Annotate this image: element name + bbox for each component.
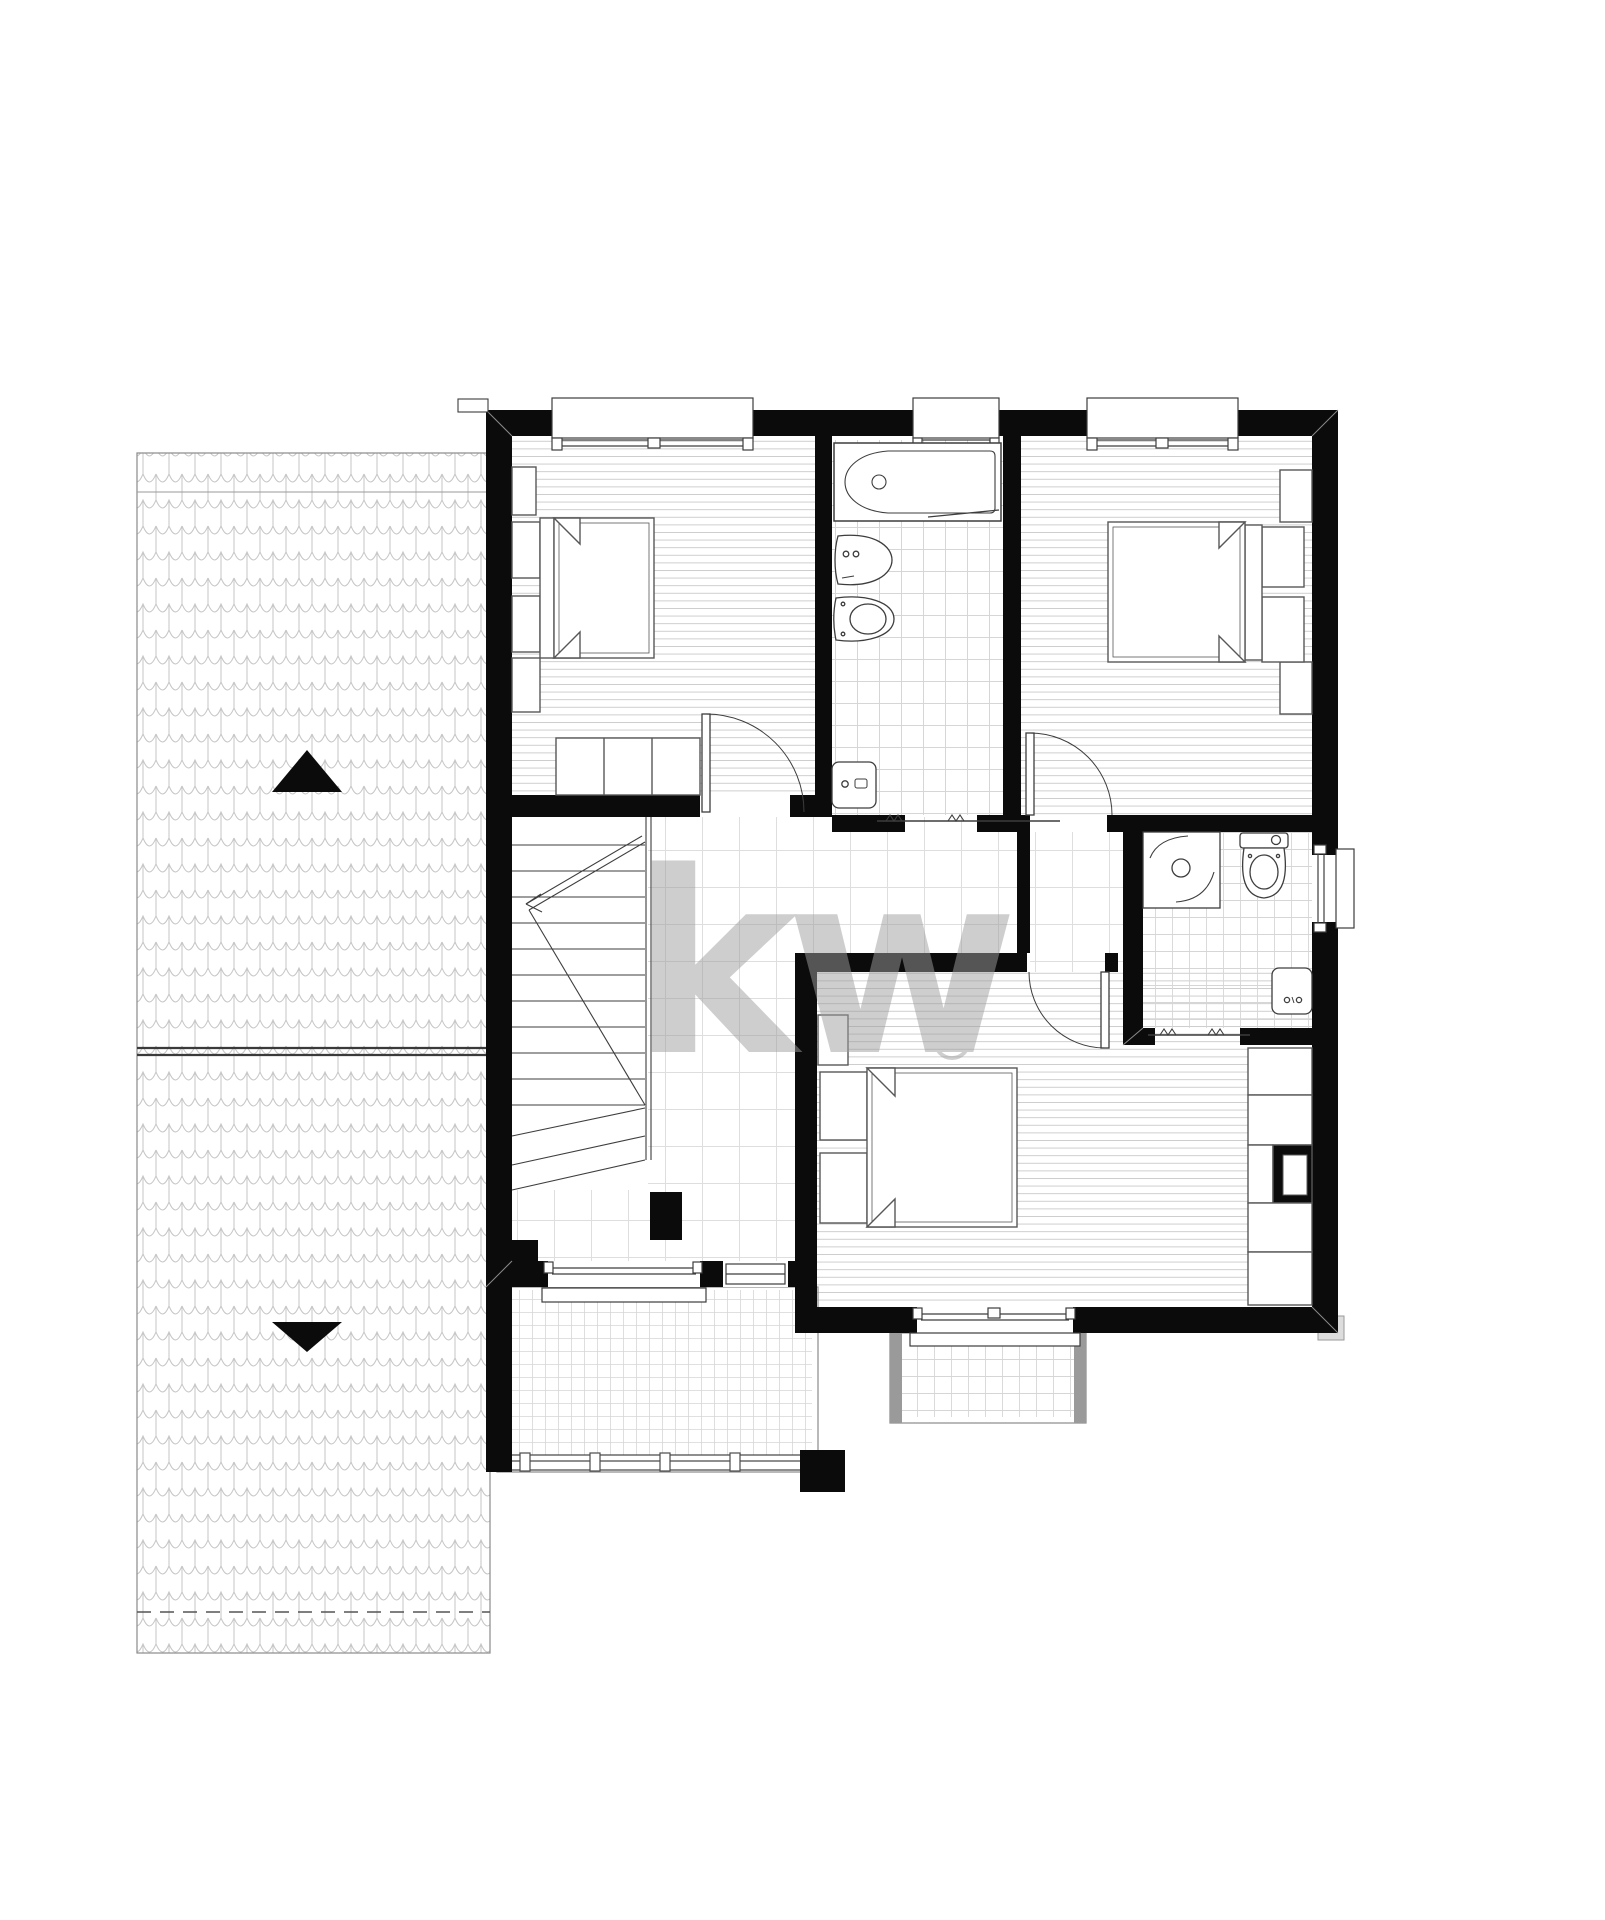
nightstand (1262, 527, 1304, 587)
duct-column-hall (650, 1192, 682, 1240)
duct-shaft-inner (1283, 1155, 1307, 1195)
roof-strip (137, 453, 490, 1653)
wall-bed1-bath (815, 436, 832, 815)
closet-run (1248, 1048, 1312, 1305)
shower (1143, 832, 1220, 908)
door-balcony (723, 1261, 788, 1287)
wall-bottom-left-2 (700, 1261, 723, 1287)
floor-plan-page: kw ® (0, 0, 1605, 1920)
wall-bath-bed2 (1003, 436, 1021, 832)
window-hall-balcony (542, 1261, 706, 1302)
wall-bathsmall-bottom-1 (1123, 1028, 1155, 1045)
corridor-floor (1030, 832, 1123, 972)
wall-sw-corner-block (486, 1240, 538, 1287)
nightstand (1262, 597, 1304, 662)
door-leaf (1101, 972, 1109, 1048)
toilet (1240, 833, 1288, 898)
wall-bed3-north-stub (1105, 953, 1118, 972)
corner-sill (458, 399, 488, 412)
wall-bathsmall-bottom-2 (1240, 1028, 1312, 1045)
cabinet (512, 467, 536, 515)
washbasin (832, 762, 876, 808)
wall-bed2-bottom-jamb (1003, 815, 1030, 832)
brand-watermark: kw ® (630, 819, 1011, 1112)
bed-mattress (554, 518, 654, 658)
wall-bed2-bottom-2 (1107, 815, 1123, 832)
window-bedroom-bottom (910, 1307, 1080, 1346)
balcony-large-tiles (505, 1290, 812, 1455)
balcony-small-side-left (890, 1333, 902, 1423)
bathtub (834, 443, 1001, 521)
wall-bathsmall-west (1123, 832, 1143, 1028)
wall-cabinet (1280, 662, 1312, 714)
wall-bathsmall-top (1123, 815, 1312, 832)
door-leaf (1026, 733, 1034, 815)
nightstand (512, 596, 540, 652)
watermark-registered-icon: ® (926, 1013, 978, 1073)
balcony-small-tiles (902, 1345, 1074, 1417)
nightstand (512, 522, 540, 578)
floor-plan-canvas: kw ® (0, 0, 1605, 1920)
bed-headboard (540, 518, 554, 658)
wall-left (486, 410, 512, 1472)
wall-corridor-west (1017, 832, 1030, 953)
wall-bed1-bottom-2 (790, 795, 832, 817)
wall-right-lower (1312, 922, 1338, 1333)
wall-bottom-right-1 (795, 1307, 917, 1333)
door-leaf (702, 714, 710, 812)
window-bathroom-small (1312, 845, 1354, 932)
balcony-large (497, 1287, 845, 1492)
bed-headboard (1245, 525, 1262, 660)
roof-area (137, 453, 490, 1653)
wall-top-3 (992, 410, 1095, 436)
wall-top-2 (745, 410, 920, 436)
washbasin (1272, 968, 1312, 1014)
wall-bottom-right-2 (1073, 1307, 1338, 1333)
balcony-corner-post (800, 1450, 845, 1492)
balcony-large-railing (505, 1453, 812, 1471)
wardrobe-3-door (556, 738, 700, 795)
wall-bed1-bottom-1 (512, 795, 700, 817)
wall-cabinet (1280, 470, 1312, 522)
cabinet (512, 658, 540, 712)
wall-right-upper (1312, 410, 1338, 855)
nightstand (820, 1153, 867, 1223)
